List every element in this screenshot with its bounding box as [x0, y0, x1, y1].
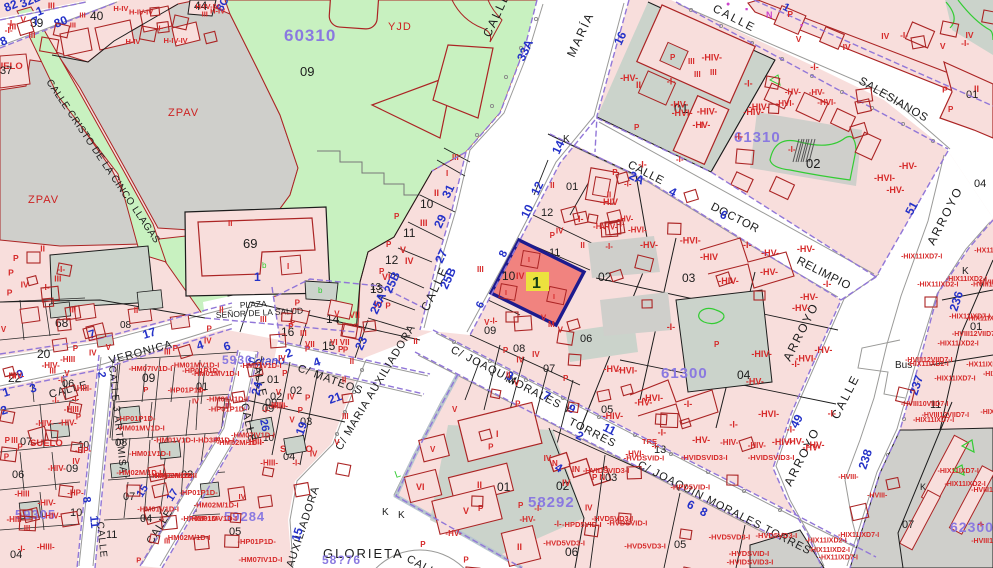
svg-text:M: M — [548, 320, 555, 329]
svg-text:-HX11IXD7-I: -HX11IXD7-I — [819, 555, 858, 562]
svg-text:-I-: -I- — [791, 359, 800, 369]
svg-text:-HIII-: -HIII- — [247, 438, 265, 447]
svg-text:YJD: YJD — [388, 21, 412, 33]
svg-text:06: 06 — [12, 469, 24, 481]
svg-text:-I-: -I- — [638, 160, 647, 170]
svg-text:P: P — [670, 53, 676, 62]
svg-text:-HV-: -HV- — [797, 244, 815, 254]
svg-text:III: III — [70, 21, 76, 30]
svg-text:-HV-: -HV- — [814, 345, 832, 355]
svg-text:-HV-: -HV- — [800, 292, 818, 302]
svg-text:-HM01V1D-I: -HM01V1D-I — [154, 435, 196, 444]
svg-text:P: P — [385, 301, 391, 310]
svg-text:02: 02 — [806, 156, 820, 171]
svg-text:●: ● — [726, 1, 730, 8]
svg-text:-HP-: -HP- — [75, 446, 92, 455]
svg-text:60310: 60310 — [284, 26, 336, 45]
svg-text:II: II — [517, 542, 522, 552]
svg-text:11: 11 — [403, 226, 416, 240]
svg-text:IN: IN — [572, 465, 580, 474]
svg-text:-I-: -I- — [810, 62, 819, 72]
svg-text:-HX11IXD7-I: -HX11IXD7-I — [974, 248, 993, 255]
svg-text:P: P — [7, 287, 13, 297]
svg-text:P: P — [305, 393, 311, 402]
svg-text:04: 04 — [974, 178, 986, 190]
svg-text:-HIV-: -HIV- — [697, 107, 718, 117]
svg-text:-HV-: -HV- — [746, 376, 764, 386]
svg-text:P: P — [295, 299, 301, 308]
svg-text:II: II — [434, 188, 439, 198]
svg-text:ZPAV: ZPAV — [28, 194, 59, 206]
svg-text:III: III — [420, 218, 428, 228]
svg-text:-HIV-: -HIV- — [720, 438, 739, 447]
svg-text:-HV-: -HV- — [670, 100, 688, 110]
svg-text:-HPD5VID-I: -HPD5VID-I — [562, 520, 602, 529]
svg-text:V: V — [452, 405, 458, 414]
svg-text:H-IV: H-IV — [125, 37, 140, 46]
svg-text:V: V — [430, 445, 436, 454]
svg-text:-HVIDSVID3-I: -HVIDSVID3-I — [583, 466, 630, 475]
svg-text:IV: IV — [72, 457, 80, 466]
svg-text:-HV-: -HV- — [886, 185, 904, 195]
svg-text:-HV-: -HV- — [620, 73, 638, 83]
svg-text:P: P — [488, 442, 494, 451]
svg-text:II: II — [134, 306, 138, 315]
svg-text:V: V — [541, 313, 547, 322]
svg-text:-HVI-: -HVI- — [642, 393, 663, 403]
svg-text:-HP01P1D-: -HP01P1D- — [168, 386, 207, 395]
svg-text:-I-: -I- — [5, 25, 13, 35]
svg-text:-I-: -I- — [490, 316, 498, 325]
svg-text:-I-: -I- — [788, 145, 796, 154]
svg-text:I: I — [496, 429, 499, 439]
svg-text:-I-: -I- — [900, 30, 908, 40]
svg-text:1: 1 — [532, 275, 541, 292]
svg-text:K: K — [920, 482, 926, 492]
svg-text:-HIV-: -HIV- — [48, 464, 67, 473]
svg-text:-HVI-: -HVI- — [628, 225, 647, 234]
svg-text:IV: IV — [204, 337, 212, 346]
svg-text:V: V — [276, 388, 282, 397]
svg-text:-HVI-: -HVI- — [625, 450, 644, 459]
svg-text:-HIII-: -HIII- — [268, 401, 286, 410]
svg-text:III: III — [79, 10, 85, 19]
svg-text:-I-: -I- — [787, 425, 796, 435]
svg-text:V: V — [334, 310, 340, 319]
svg-text:09: 09 — [300, 64, 314, 79]
svg-text:07: 07 — [902, 519, 914, 531]
svg-text:I: I — [287, 262, 289, 271]
svg-text:-HM01V1D-I: -HM01V1D-I — [137, 504, 179, 513]
svg-text:-HIX11IXD2-I: -HIX11IXD2-I — [809, 547, 850, 554]
svg-text:IV: IV — [881, 31, 889, 41]
svg-text:-HVD5VD3-I: -HVD5VD3-I — [543, 539, 585, 548]
svg-text:P: P — [394, 212, 400, 221]
svg-text:P: P — [8, 267, 14, 277]
svg-text:III: III — [11, 436, 18, 445]
svg-text:III: III — [48, 0, 55, 10]
svg-text:-HVI-: -HVI- — [680, 235, 701, 245]
svg-text:-HIV: -HIV — [700, 252, 718, 262]
svg-text:-HVIII12VIID7-I: -HVIII12VIID7-I — [952, 331, 993, 338]
svg-text:P: P — [288, 322, 294, 331]
svg-text:-HP01P1D-: -HP01P1D- — [117, 414, 156, 423]
svg-text:10: 10 — [502, 269, 516, 283]
svg-text:P: P — [714, 340, 720, 349]
svg-text:-HIX11IXD2-I: -HIX11IXD2-I — [937, 341, 978, 348]
svg-text:P: P — [503, 346, 509, 355]
svg-text:P: P — [463, 556, 469, 565]
svg-text:III: III — [477, 265, 484, 274]
svg-text:V: V — [514, 379, 520, 388]
svg-text:P: P — [518, 501, 524, 510]
svg-text:-HV-: -HV- — [445, 529, 461, 538]
svg-text:IV: IV — [516, 356, 524, 365]
svg-text:V: V — [484, 318, 490, 327]
svg-text:IV: IV — [585, 503, 593, 512]
svg-text:06: 06 — [580, 333, 592, 345]
svg-text:-HIX11IXD2-I: -HIX11IXD2-I — [907, 361, 948, 368]
svg-text:-HIV-: -HIV- — [701, 53, 722, 63]
svg-text:IV: IV — [310, 449, 318, 458]
svg-text:-HX11IXD7-I: -HX11IXD7-I — [966, 361, 993, 368]
svg-text:-HV-: -HV- — [760, 267, 778, 277]
svg-text:b: b — [262, 261, 267, 270]
svg-text:-HVIII-: -HVIII- — [867, 492, 888, 499]
svg-text:IV: IV — [287, 393, 295, 402]
svg-text:-HIX11IXD2-I: -HIX11IXD2-I — [917, 282, 958, 289]
svg-text:II: II — [342, 376, 346, 385]
svg-text:K: K — [398, 510, 405, 521]
svg-text:-HM01MV1D-I: -HM01MV1D-I — [117, 424, 165, 433]
svg-text:69: 69 — [243, 236, 257, 251]
svg-text:P: P — [5, 436, 11, 445]
svg-text:-HIX11IXD2-I: -HIX11IXD2-I — [983, 371, 993, 378]
svg-text:2: 2 — [95, 371, 108, 378]
svg-text:1: 1 — [254, 270, 261, 284]
svg-text:▪: ▪ — [745, 4, 748, 14]
svg-text:-I-: -I- — [667, 77, 676, 87]
svg-text:IV: IV — [516, 271, 525, 281]
svg-text:02: 02 — [598, 270, 612, 284]
svg-text:40: 40 — [90, 9, 104, 23]
svg-text:-I-: -I- — [676, 155, 684, 164]
svg-text:-HP-: -HP- — [67, 488, 84, 497]
svg-text:-HIII: -HIII — [60, 355, 75, 364]
svg-text:IV: IV — [192, 396, 199, 405]
svg-text:09: 09 — [142, 371, 156, 385]
svg-text:-HIV-: -HIV- — [43, 511, 62, 520]
svg-text:-HVI-: -HVI- — [672, 108, 693, 118]
svg-text:III: III — [24, 524, 31, 533]
svg-text:VI: VI — [416, 482, 425, 492]
svg-text:IV: IV — [532, 350, 540, 359]
svg-text:-HPD5VID-I: -HPD5VID-I — [670, 482, 710, 491]
svg-text:-HV-: -HV- — [520, 515, 536, 524]
svg-text:-HIV-: -HIV- — [751, 349, 772, 359]
svg-text:-HIII: -HIII — [14, 489, 29, 498]
svg-text:I: I — [446, 169, 448, 178]
svg-text:IV: IV — [843, 42, 851, 52]
svg-text:P: P — [386, 240, 392, 249]
svg-text:-HIV-: -HIV- — [603, 411, 624, 421]
svg-text:-HV-: -HV- — [785, 87, 801, 96]
svg-text:-HV-: -HV- — [899, 161, 917, 171]
svg-text:-HV-: -HV- — [640, 240, 658, 250]
svg-text:-I-: -I- — [978, 521, 985, 528]
svg-text:-I-: -I- — [684, 399, 693, 409]
svg-text:IV: IV — [89, 348, 97, 357]
svg-text:H-IV: H-IV — [210, 7, 225, 16]
svg-text:III: III — [164, 348, 171, 357]
svg-text:IV: IV — [562, 478, 571, 488]
svg-text:12: 12 — [541, 207, 553, 219]
svg-text:P: P — [515, 399, 521, 408]
svg-text:V: V — [940, 41, 946, 51]
svg-text:P: P — [948, 105, 954, 114]
svg-text:III: III — [694, 70, 701, 79]
svg-text:II: II — [506, 370, 510, 379]
svg-text:P: P — [634, 123, 640, 132]
svg-text:-HV-: -HV- — [692, 120, 710, 130]
svg-text:-HIV-: -HIV- — [743, 107, 764, 117]
svg-text:III: III — [300, 329, 307, 338]
svg-text:-HVD5VD3-I: -HVD5VD3-I — [624, 542, 666, 551]
svg-text:-I-: -I- — [744, 79, 753, 89]
svg-text:-HVI-: -HVI- — [874, 173, 895, 183]
svg-text:-HVIDSVID3-I: -HVIDSVID3-I — [681, 453, 728, 462]
svg-text:P: P — [550, 231, 556, 240]
svg-text:-HIX11IXD2-I: -HIX11IXD2-I — [805, 537, 846, 544]
svg-text:-HVI-: -HVI- — [817, 98, 836, 107]
svg-text:P: P — [787, 9, 793, 19]
svg-text:II: II — [580, 241, 584, 250]
svg-text:-I-: -I- — [292, 458, 300, 467]
svg-text:ZPAV: ZPAV — [168, 107, 199, 119]
svg-text:-I-: -I- — [729, 420, 738, 430]
svg-text:V: V — [64, 369, 70, 378]
svg-text:-HV-: -HV- — [807, 440, 825, 450]
svg-text:-I-: -I- — [534, 504, 542, 513]
svg-text:P: P — [298, 406, 304, 415]
svg-text:37: 37 — [0, 65, 12, 77]
svg-text:-HIV-: -HIV- — [718, 276, 739, 286]
svg-text:H-IV: H-IV — [113, 4, 128, 13]
svg-text:-HVDSVID-I: -HVDSVID-I — [729, 549, 769, 558]
svg-text:-HP01P1D-: -HP01P1D- — [182, 366, 221, 375]
svg-text:▪: ▪ — [800, 20, 803, 30]
svg-text:-HVIDSVID3-I: -HVIDSVID3-I — [748, 453, 795, 462]
svg-text:P: P — [17, 442, 23, 451]
svg-text:V: V — [463, 506, 469, 516]
svg-text:08: 08 — [513, 343, 525, 355]
svg-text:-HIX11IXD7-I: -HIX11IXD7-I — [966, 315, 993, 322]
svg-text:-HV-: -HV- — [792, 303, 810, 313]
svg-text:P: P — [942, 85, 948, 95]
svg-text:P: P — [73, 344, 79, 353]
svg-text:-HVD5VD3-I: -HVD5VD3-I — [756, 531, 798, 540]
svg-text:-HIX11IXD7-I: -HIX11IXD7-I — [913, 417, 954, 424]
svg-text:01: 01 — [497, 480, 511, 494]
svg-text:P: P — [305, 345, 311, 354]
svg-text:-HIX11IXD7-I: -HIX11IXD7-I — [938, 468, 979, 475]
svg-text:II: II — [350, 357, 354, 366]
svg-text:II: II — [219, 305, 223, 314]
svg-text:P: P — [215, 436, 220, 445]
svg-text:-HIII-: -HIII- — [37, 543, 55, 552]
svg-text:V: V — [334, 438, 340, 447]
svg-text:P: P — [143, 385, 148, 394]
svg-text:P: P — [282, 369, 288, 378]
svg-text:11: 11 — [87, 515, 102, 529]
svg-text:12: 12 — [385, 253, 399, 267]
svg-text:-HM07IV1D-I: -HM07IV1D-I — [239, 555, 283, 564]
svg-text:I: I — [553, 294, 555, 301]
svg-text:58?76: 58?76 — [322, 553, 361, 567]
svg-text:II: II — [550, 181, 554, 190]
svg-text:-HVI-: -HVI- — [616, 365, 637, 375]
svg-text:07: 07 — [123, 491, 135, 503]
svg-text:-HVIII10VIID7-I: -HVIII10VIID7-I — [901, 401, 949, 408]
svg-text:07: 07 — [543, 363, 555, 375]
svg-text:-HP01P1D-: -HP01P1D- — [237, 537, 276, 546]
svg-text:II: II — [413, 337, 417, 346]
svg-text:II: II — [228, 219, 232, 228]
svg-text:-I-: -I- — [823, 279, 832, 289]
svg-text:III: III — [202, 10, 208, 19]
svg-text:P: P — [563, 374, 569, 383]
svg-text:V: V — [1, 325, 7, 334]
svg-text:-HVIDSVID3-I: -HVIDSVID3-I — [727, 557, 774, 566]
svg-text:-HIV: -HIV — [600, 197, 618, 207]
svg-text:-HV-: -HV- — [786, 436, 804, 446]
svg-text:III: III — [49, 366, 56, 375]
svg-text:-I-: -I- — [743, 240, 752, 250]
svg-text:01: 01 — [267, 374, 279, 386]
svg-text:-HP01P1D-: -HP01P1D- — [179, 488, 218, 497]
svg-text:V: V — [106, 343, 112, 352]
svg-text:-HVIII-: -HVIII- — [838, 474, 859, 481]
svg-text:III: III — [164, 537, 170, 546]
svg-text:III: III — [688, 57, 695, 66]
svg-text:IV: IV — [405, 256, 414, 266]
svg-text:P: P — [136, 555, 141, 564]
svg-text:01: 01 — [566, 181, 578, 193]
svg-text:P: P — [420, 540, 426, 549]
svg-text:-HM07IV1D-I: -HM07IV1D-I — [129, 364, 173, 373]
svg-text:-I-: -I- — [52, 396, 60, 405]
svg-text:IV: IV — [556, 227, 564, 236]
svg-text:-HIX11IXD7-I: -HIX11IXD7-I — [901, 253, 942, 260]
svg-text:H-IV-IV: H-IV-IV — [164, 36, 188, 45]
svg-text:-I-: -I- — [18, 545, 26, 554]
svg-text:-HV-: -HV- — [809, 88, 825, 97]
svg-text:III: III — [710, 68, 717, 77]
svg-text:-HIV-: -HIV- — [37, 498, 56, 507]
svg-text:20: 20 — [37, 347, 51, 361]
svg-text:10: 10 — [420, 197, 434, 211]
svg-text:P: P — [612, 168, 618, 177]
svg-text:I: I — [528, 257, 530, 264]
svg-text:-I-: -I- — [575, 214, 584, 224]
svg-text:V: V — [289, 415, 295, 424]
svg-text:V: V — [400, 245, 406, 255]
svg-text:-HVIII12VIID7-I: -HVIII12VIID7-I — [971, 487, 993, 494]
svg-text:-HIII-: -HIII- — [260, 459, 278, 468]
svg-text:IV: IV — [544, 454, 552, 463]
svg-text:-I-: -I- — [652, 442, 660, 451]
svg-text:-HIX11IXD2-I: -HIX11IXD2-I — [980, 409, 993, 416]
svg-text:-HIV-: -HIV- — [58, 419, 77, 428]
svg-text:-HVIII10VIID7-I: -HVIII10VIID7-I — [971, 538, 993, 545]
svg-text:-I-: -I- — [605, 242, 613, 251]
svg-text:-HM01V1D-I: -HM01V1D-I — [129, 449, 171, 458]
svg-text:N: N — [766, 10, 773, 20]
svg-text:IV: IV — [278, 354, 286, 363]
svg-text:II: II — [40, 244, 45, 254]
svg-text:-HIX11IXD7-I: -HIX11IXD7-I — [934, 375, 975, 382]
svg-text:-HIV-: -HIV- — [748, 441, 767, 450]
svg-text:-I-: -I- — [828, 409, 837, 419]
svg-text:I: I — [505, 290, 507, 297]
svg-text:-I-: -I- — [554, 520, 562, 529]
svg-text:-I-: -I- — [961, 38, 969, 48]
svg-text:b: b — [318, 286, 323, 295]
svg-text:10: 10 — [70, 507, 82, 519]
svg-text:III: III — [342, 412, 349, 421]
svg-text:05: 05 — [674, 539, 686, 551]
svg-text:-I-: -I- — [734, 131, 743, 141]
svg-text:-I-: -I- — [658, 428, 667, 438]
svg-text:-I-: -I- — [667, 322, 676, 332]
svg-text:P: P — [379, 267, 385, 276]
svg-text:-HVI-: -HVI- — [776, 99, 795, 108]
svg-text:-HVD5VD3-I: -HVD5VD3-I — [709, 532, 751, 541]
svg-text:62300: 62300 — [950, 519, 993, 535]
svg-text:-HVI-: -HVI- — [758, 409, 779, 419]
svg-text:P: P — [343, 346, 349, 355]
svg-text:03: 03 — [682, 271, 696, 285]
svg-text:-HV-: -HV- — [692, 435, 710, 445]
svg-text:P: P — [206, 325, 212, 334]
svg-text:P: P — [13, 253, 19, 263]
svg-text:K: K — [382, 507, 389, 518]
svg-text:V: V — [796, 34, 802, 44]
svg-text:-HM02M/1D-I: -HM02M/1D-I — [152, 471, 197, 480]
